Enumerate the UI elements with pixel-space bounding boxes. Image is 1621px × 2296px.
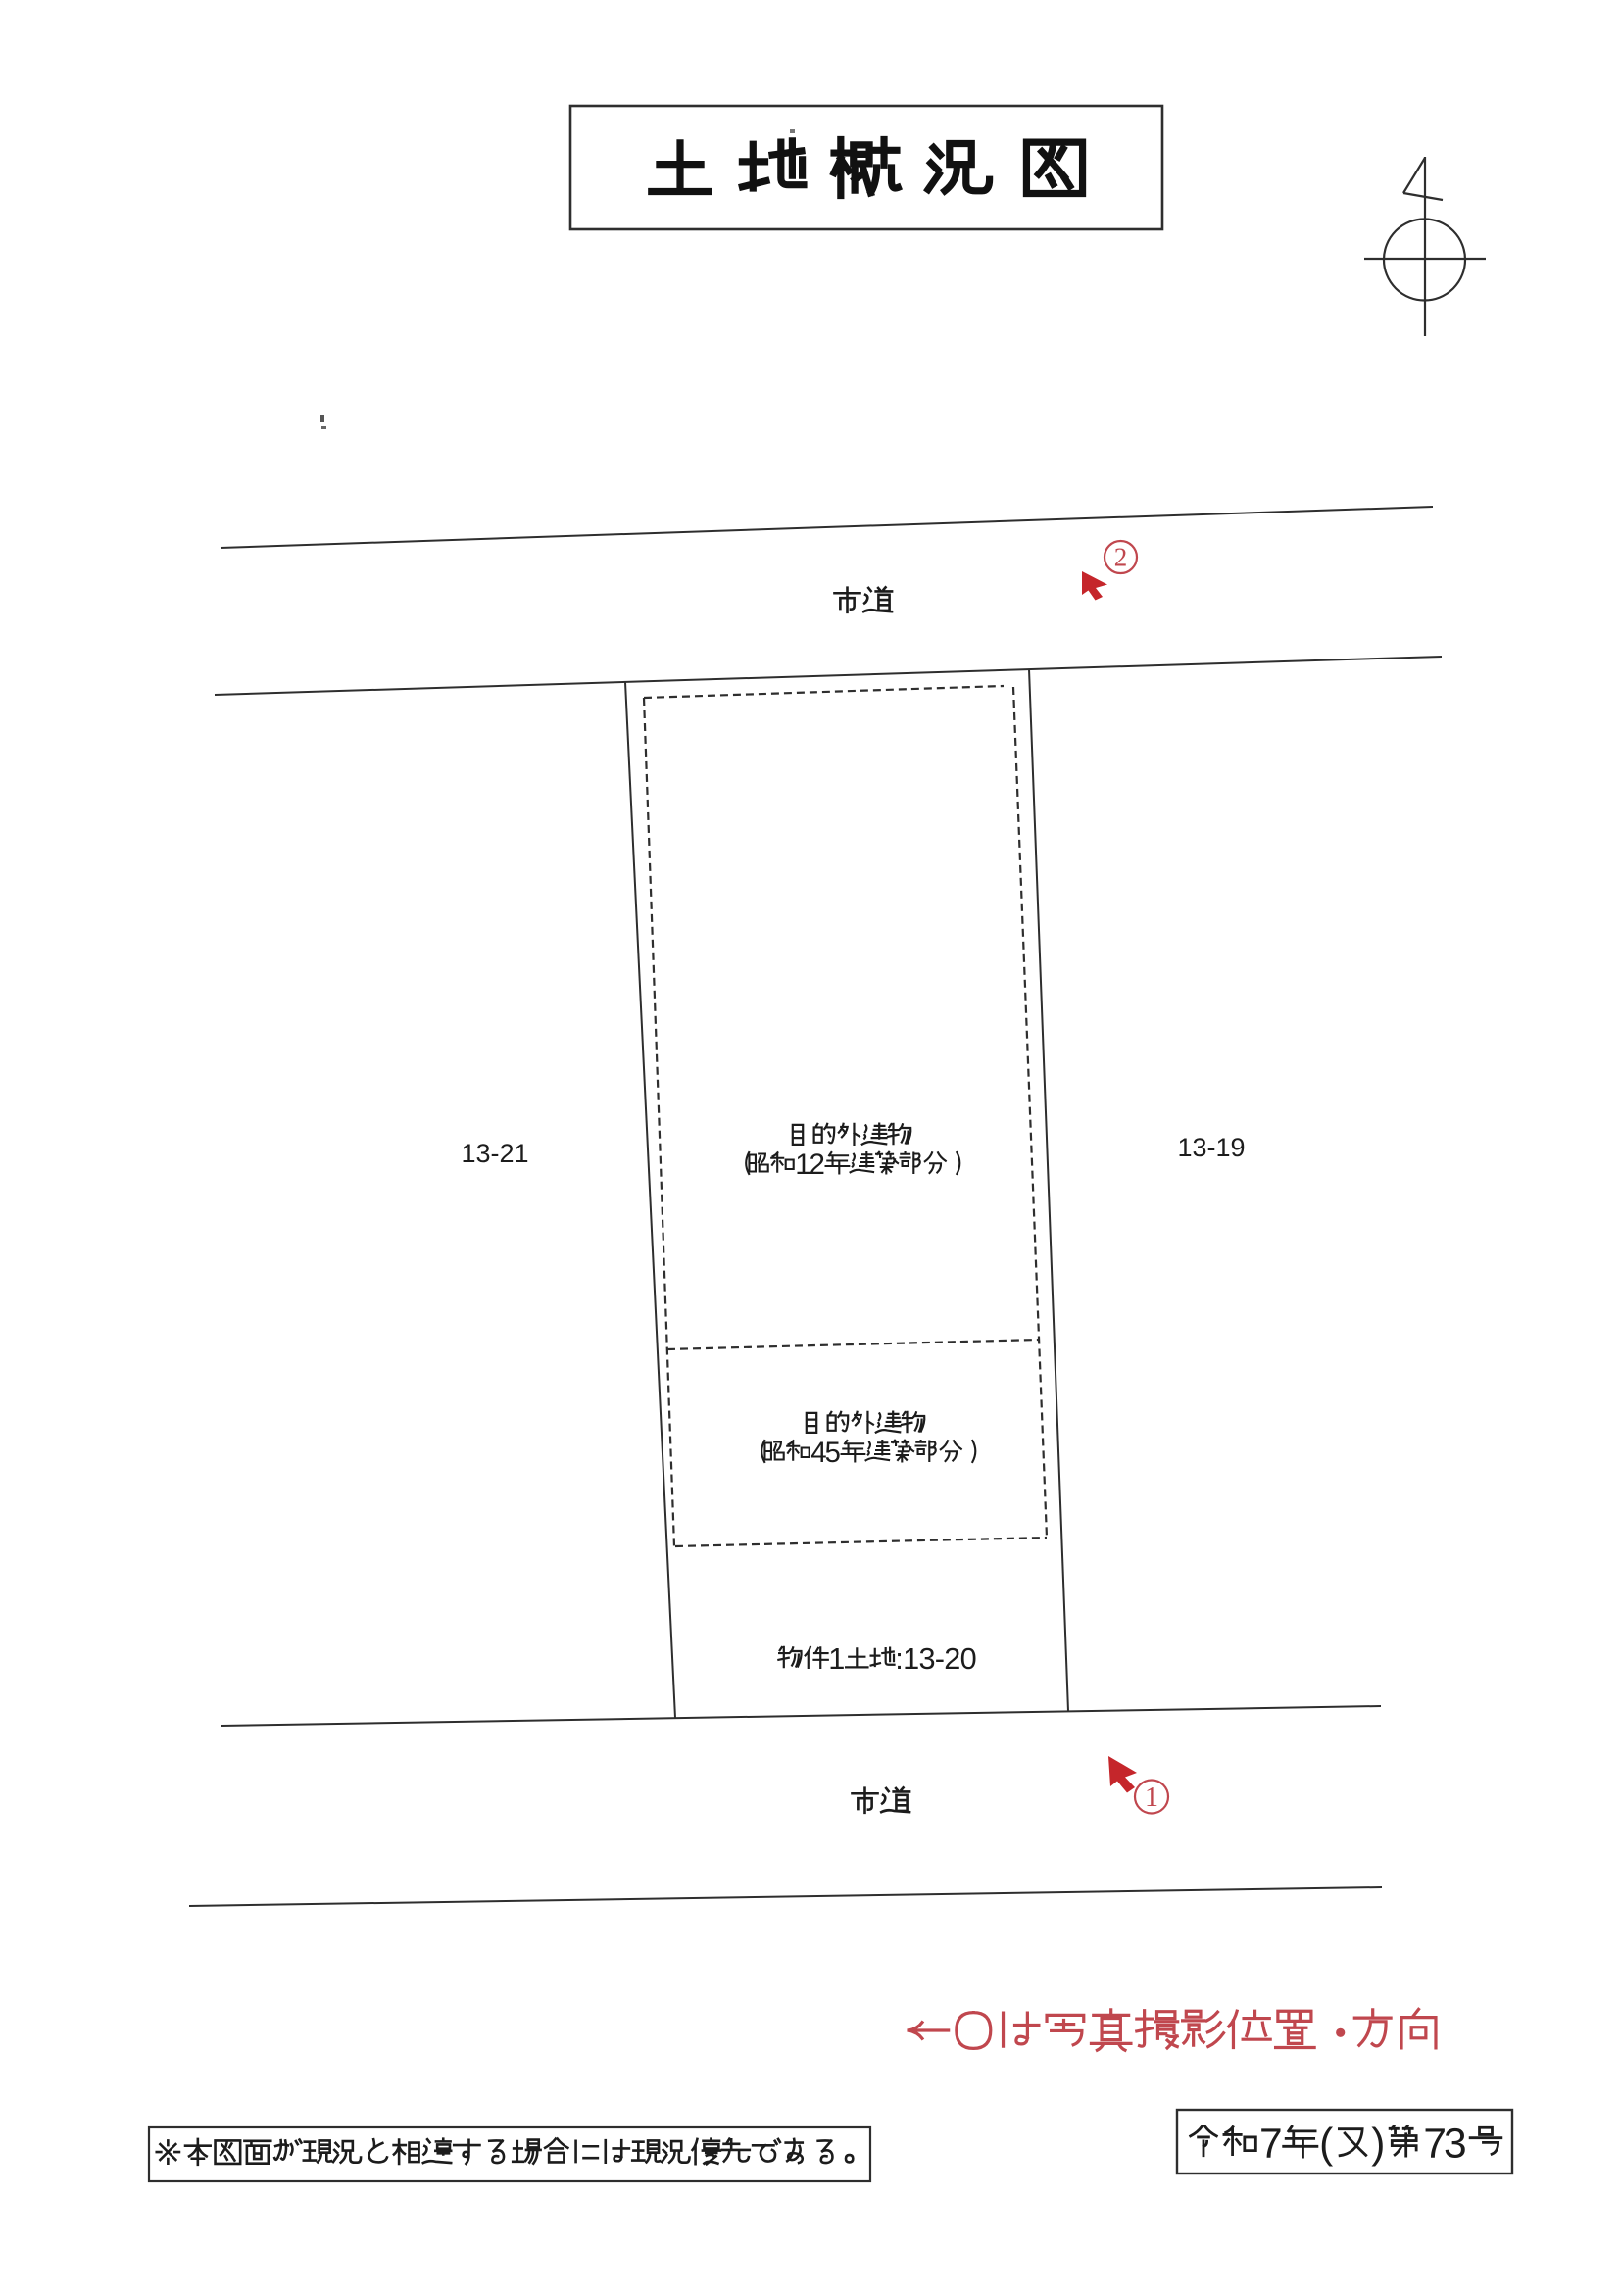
- svg-text:2: 2: [1114, 543, 1128, 572]
- svg-text:): ): [1371, 2122, 1385, 2168]
- svg-text::13-20: :13-20: [895, 1641, 976, 1676]
- svg-text:12: 12: [795, 1148, 825, 1181]
- svg-text:(: (: [1319, 2122, 1333, 2168]
- svg-text:73: 73: [1423, 2122, 1466, 2168]
- svg-text:1: 1: [828, 1641, 845, 1676]
- svg-text:7: 7: [1259, 2122, 1283, 2168]
- svg-text:13-19: 13-19: [1177, 1133, 1245, 1162]
- svg-text:45: 45: [810, 1437, 841, 1469]
- svg-text:13-21: 13-21: [461, 1139, 528, 1168]
- svg-text:1: 1: [1145, 1783, 1158, 1813]
